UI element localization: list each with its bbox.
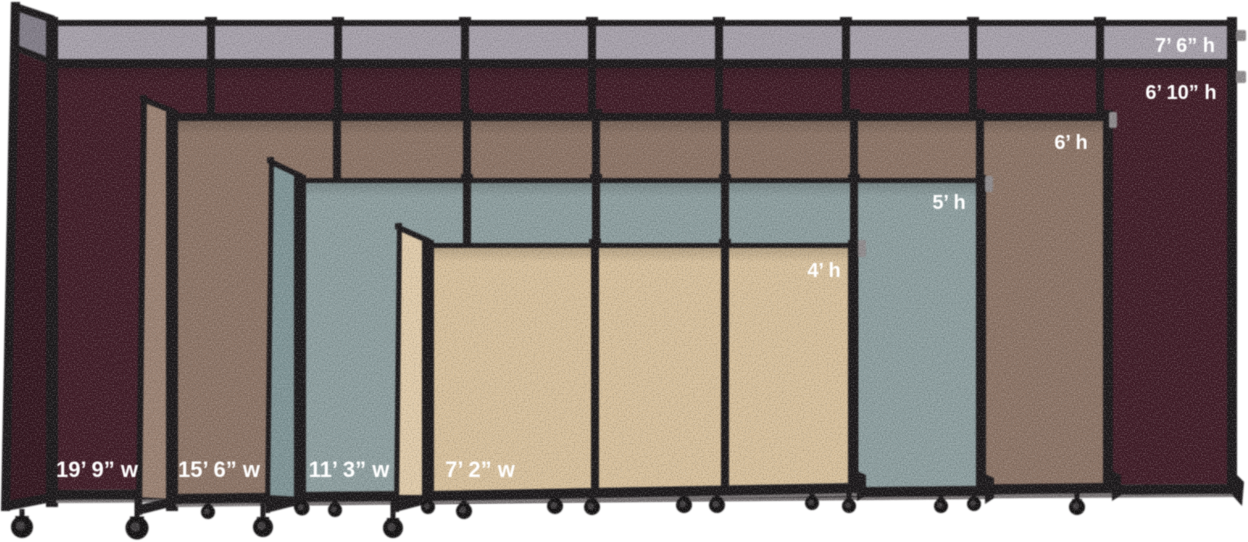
svg-text:4’ h: 4’ h — [807, 260, 840, 282]
svg-text:6’ h: 6’ h — [1054, 132, 1087, 154]
svg-text:7’ 6” h: 7’ 6” h — [1155, 35, 1215, 57]
svg-text:6’ 10” h: 6’ 10” h — [1145, 82, 1216, 104]
svg-text:7’ 2” w: 7’ 2” w — [445, 457, 516, 482]
svg-text:15’ 6” w: 15’ 6” w — [178, 457, 261, 482]
svg-text:19’ 9” w: 19’ 9” w — [56, 457, 139, 482]
svg-text:11’ 3” w: 11’ 3” w — [309, 457, 391, 482]
svg-text:5’ h: 5’ h — [932, 192, 965, 214]
